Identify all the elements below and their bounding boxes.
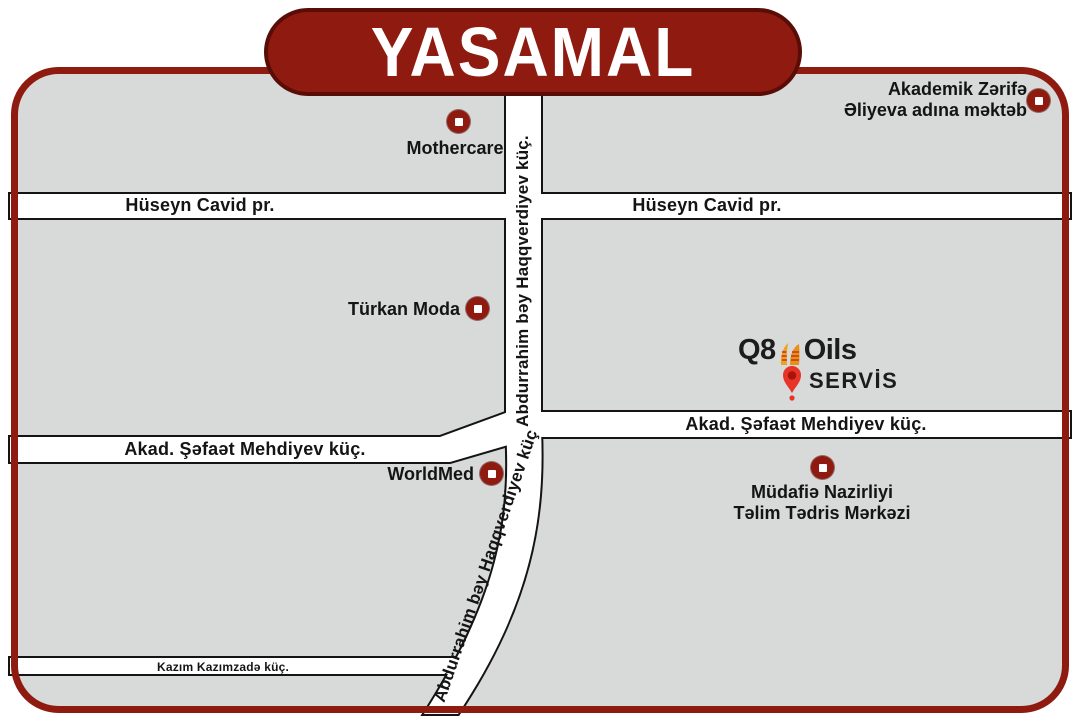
street-label-kazimzade: Kazım Kazımzadə küç. [103, 660, 343, 674]
map-pin-icon [780, 365, 804, 403]
poi-worldmed: WorldMed [352, 464, 474, 485]
servis-text: SERVİS [809, 368, 898, 394]
poi-mudafie: Müdafiə Nazirliyi Təlim Tədris Mərkəzi [702, 482, 942, 524]
marker-center [1035, 97, 1043, 105]
street-label-huseyn-cavid-left: Hüseyn Cavid pr. [60, 195, 340, 216]
poi-mudafie-line1: Müdafiə Nazirliyi [702, 482, 942, 503]
street-label-mehdiyev-left: Akad. Şəfaət Mehdiyev küç. [105, 439, 385, 460]
location-marker-icon [480, 462, 503, 485]
location-marker-icon [1027, 89, 1050, 112]
poi-mudafie-line2: Təlim Tədris Mərkəzi [702, 503, 942, 524]
location-marker-icon [466, 297, 489, 320]
marker-center [488, 470, 496, 478]
q8-oils-servis-logo: Q8 Oils SERVİS [738, 334, 898, 403]
poi-mothercare: Mothercare [370, 138, 540, 159]
location-marker-icon [811, 456, 834, 479]
q8-oils-wordmark: Q8 Oils [738, 334, 898, 367]
street-label-mehdiyev-right: Akad. Şəfaət Mehdiyev küç. [666, 414, 946, 435]
title-banner: YASAMAL [264, 8, 802, 96]
yasamal-map: YASAMAL Hüseyn Cavid pr. Hüseyn Cavid pr… [0, 0, 1080, 724]
poi-school-line2: Əliyeva adına məktəb [790, 100, 1027, 121]
location-marker-icon [447, 110, 470, 133]
q8-sails-icon [777, 341, 803, 367]
street-label-huseyn-cavid-right: Hüseyn Cavid pr. [567, 195, 847, 216]
q8-text: Q8 [738, 334, 776, 367]
servis-row: SERVİS [780, 365, 898, 403]
poi-turkan-moda: Türkan Moda [340, 299, 460, 320]
marker-center [819, 464, 827, 472]
oils-text: Oils [804, 334, 857, 367]
poi-school: Akademik Zərifə Əliyeva adına məktəb [790, 79, 1027, 121]
page-title: YASAMAL [371, 12, 696, 92]
marker-center [474, 305, 482, 313]
marker-center [455, 118, 463, 126]
street-label-haqqverdiyev-upper: Abdurrahim bəy Haqqverdiyev küç. [513, 131, 533, 431]
poi-school-line1: Akademik Zərifə [790, 79, 1027, 100]
